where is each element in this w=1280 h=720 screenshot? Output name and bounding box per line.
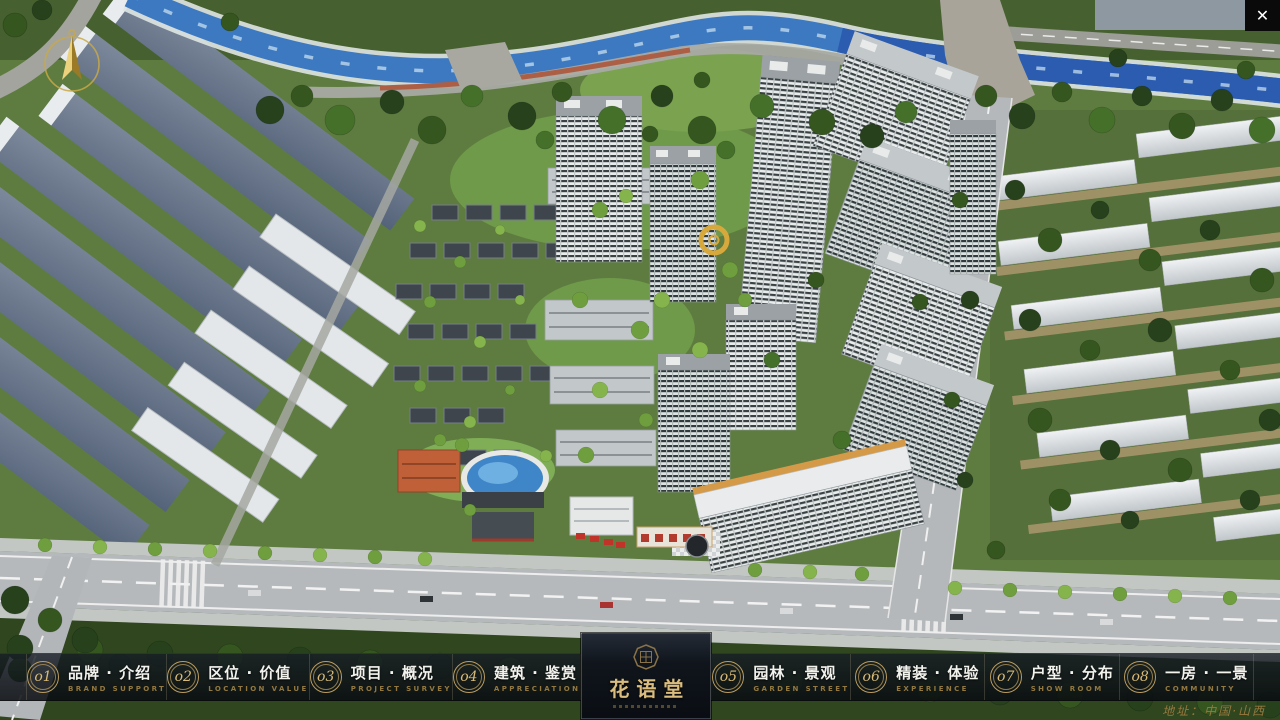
nav-number-badge: o7 [990,661,1022,693]
nav-label-en: LOCATION VALUE [208,685,308,693]
logo-subtitle-line [613,705,679,708]
nav-number-badge: o1 [27,661,59,693]
nav-label-en: EXPERIENCE [896,685,969,693]
nav-label-zh: 园林 · 景观 [753,662,836,683]
nav-label-zh: 户型 · 分布 [1031,662,1114,683]
nav-label-en: GARDEN STREET [753,685,849,693]
nav-item-architecture-appreciation[interactable]: o4 建筑 · 鉴赏 APPRECIATION [452,654,581,700]
nav-item-brand-intro[interactable]: o1 品牌 · 介绍 BRAND SUPPORT [26,654,166,700]
nav-number-badge: o3 [310,661,342,693]
nav-number-badge: o5 [712,661,744,693]
nav-label-en: APPRECIATION [494,685,580,693]
nav-label-zh: 建筑 · 鉴赏 [494,662,577,683]
nav-label-zh: 区位 · 价值 [208,662,291,683]
nav-label-zh: 项目 · 概况 [351,662,434,683]
nav-item-garden-landscape[interactable]: o5 园林 · 景观 GARDEN STREET [711,654,849,700]
nav-item-interior-experience[interactable]: o6 精装 · 体验 EXPERIENCE [850,654,984,700]
nav-left-group: o1 品牌 · 介绍 BRAND SUPPORT o2 区位 · 价值 LOCA… [26,654,581,700]
seal-icon [633,644,659,670]
nav-label-zh: 精装 · 体验 [896,662,979,683]
logo-panel[interactable]: 花语堂 [581,633,711,719]
nav-item-floorplan-distribution[interactable]: o7 户型 · 分布 SHOW ROOM [984,654,1118,700]
nav-item-location-value[interactable]: o2 区位 · 价值 LOCATION VALUE [166,654,308,700]
nav-number-badge: o2 [167,661,199,693]
masterplan-render [0,0,1280,720]
nav-label-zh: 品牌 · 介绍 [68,662,151,683]
nav-number-badge: o6 [855,661,887,693]
bottom-navbar: o1 品牌 · 介绍 BRAND SUPPORT o2 区位 · 价值 LOCA… [0,653,1280,701]
nav-item-project-overview[interactable]: o3 项目 · 概况 PROJECT SURVEY [309,654,452,700]
close-icon: ✕ [1256,6,1269,25]
nav-label-en: SHOW ROOM [1031,685,1104,693]
nav-number-badge: o4 [453,661,485,693]
app-window: ✕ o1 品牌 · 介绍 BRAND SUPPORT o2 区位 · 价值 LO… [0,0,1280,720]
nav-label-en: PROJECT SURVEY [351,685,452,693]
address-text: 地址：中国·山西 [1162,702,1266,719]
nav-label-en: BRAND SUPPORT [68,685,166,693]
nav-number-badge: o8 [1124,661,1156,693]
nav-label-zh: 一房 · 一景 [1165,662,1248,683]
nav-right-group: o5 园林 · 景观 GARDEN STREET o6 精装 · 体验 EXPE… [711,654,1254,700]
nav-label-en: COMMUNITY [1165,685,1236,693]
close-button[interactable]: ✕ [1245,0,1280,31]
logo-title: 花语堂 [602,673,690,702]
nav-item-room-view[interactable]: o8 一房 · 一景 COMMUNITY [1119,654,1254,700]
